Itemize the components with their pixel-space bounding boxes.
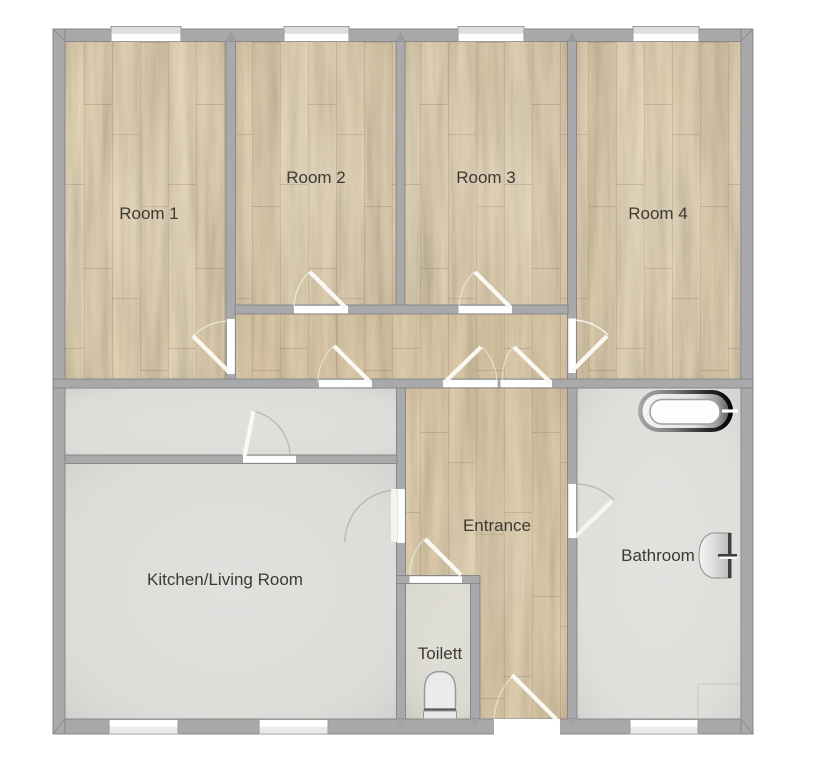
svg-text:Room 2: Room 2	[286, 168, 346, 187]
svg-text:Room 1: Room 1	[119, 204, 179, 223]
svg-text:Bathroom: Bathroom	[621, 546, 695, 565]
svg-text:Toilett: Toilett	[418, 644, 463, 663]
svg-text:Kitchen/Living Room: Kitchen/Living Room	[147, 570, 303, 589]
svg-text:Room 4: Room 4	[628, 204, 688, 223]
svg-text:Room 3: Room 3	[456, 168, 516, 187]
svg-text:Entrance: Entrance	[463, 516, 531, 535]
